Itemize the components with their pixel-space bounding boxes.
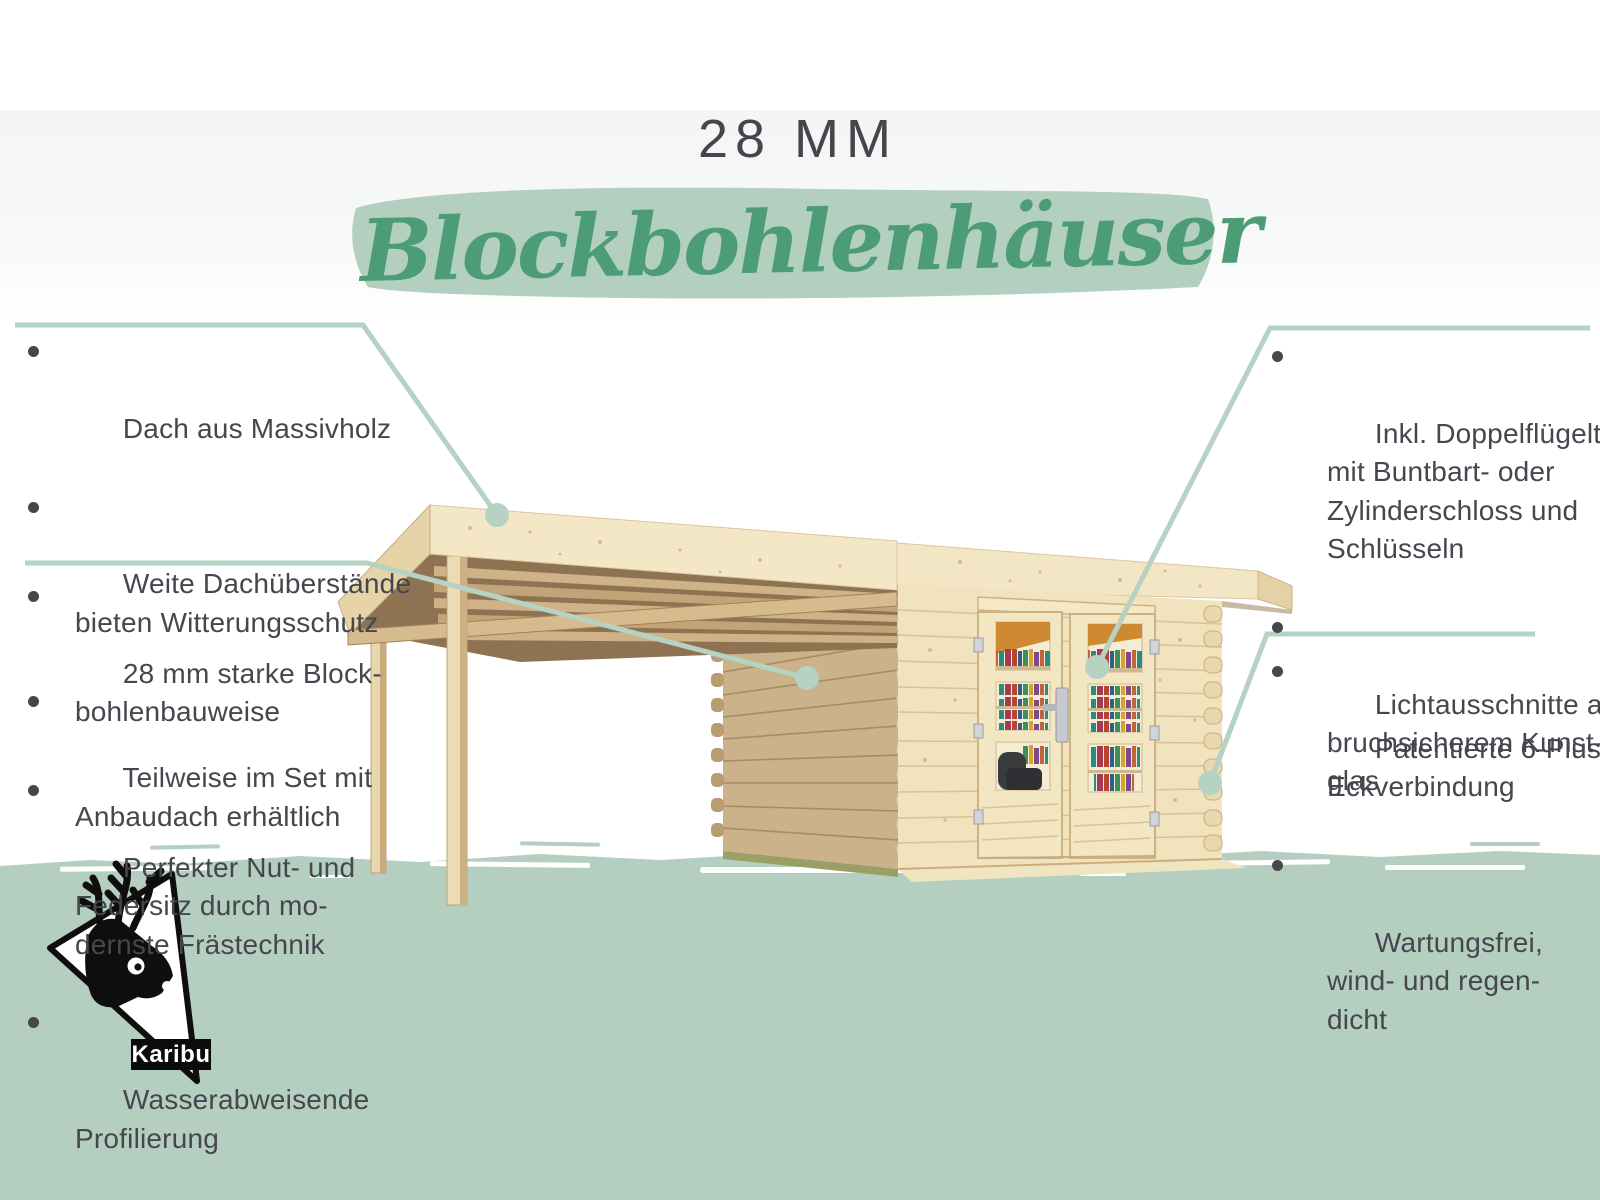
callout-text: Wasserabweisende Profilierung [75,1084,369,1153]
door-right-glass [1088,624,1142,792]
callout-dot-corner [1198,771,1222,795]
bullet-dot [28,346,39,357]
bullet-dot [28,1017,39,1028]
bullet-dot [1272,351,1283,362]
door-left-glass [996,622,1050,790]
brand-label: Karibu [131,1039,211,1070]
door-left-leaf [974,612,1062,858]
infographic-page: 28 MM Blockbohlenhäuser Dach aus Massivh… [0,0,1600,1200]
door-right-leaf [1070,614,1159,858]
bullet-dot [28,591,39,602]
callout-item: Patentierte 6-Plus- Eckverbindung [1258,653,1600,845]
callout-text: Perfekter Nut- und Federsitz durch mo- d… [75,852,355,960]
callout-block-corner: Patentierte 6-Plus- Eckverbindung Wartun… [1258,653,1600,1079]
bullet-dot [28,785,39,796]
callout-item: 28 mm starke Block- bohlenbauweise [20,578,382,770]
bullet-dot [1272,666,1283,677]
callout-dot-roof [485,503,509,527]
callout-text: Dach aus Massivholz [123,413,391,444]
page-title-size: 28 MM [598,108,998,170]
callout-item: Wasserabweisende Profilierung [20,1004,382,1196]
callout-text: Wartungsfrei, wind- und regen- dicht [1327,927,1543,1035]
callout-block-wall: 28 mm starke Block- bohlenbauweise Perfe… [20,578,382,1199]
page-title-heading: Blockbohlenhäuser [359,183,1221,302]
callout-item: Perfekter Nut- und Federsitz durch mo- d… [20,772,382,1002]
callout-item: Wartungsfrei, wind- und regen- dicht [1258,847,1600,1077]
callout-text: Patentierte 6-Plus- Eckverbindung [1327,733,1600,802]
callout-item: Inkl. Doppelflügeltür mit Buntbart- oder… [1258,338,1600,607]
callout-dot-wall [795,666,819,690]
callout-item: Dach aus Massivholz [20,333,411,487]
callout-dot-door [1085,655,1109,679]
post-front-shade [460,556,467,905]
bullet-dot [28,502,39,513]
bullet-dot [1272,860,1283,871]
bullet-dot [1272,622,1283,633]
callout-text: Inkl. Doppelflügeltür mit Buntbart- oder… [1327,418,1600,564]
callout-text: 28 mm starke Block- bohlenbauweise [75,658,382,727]
